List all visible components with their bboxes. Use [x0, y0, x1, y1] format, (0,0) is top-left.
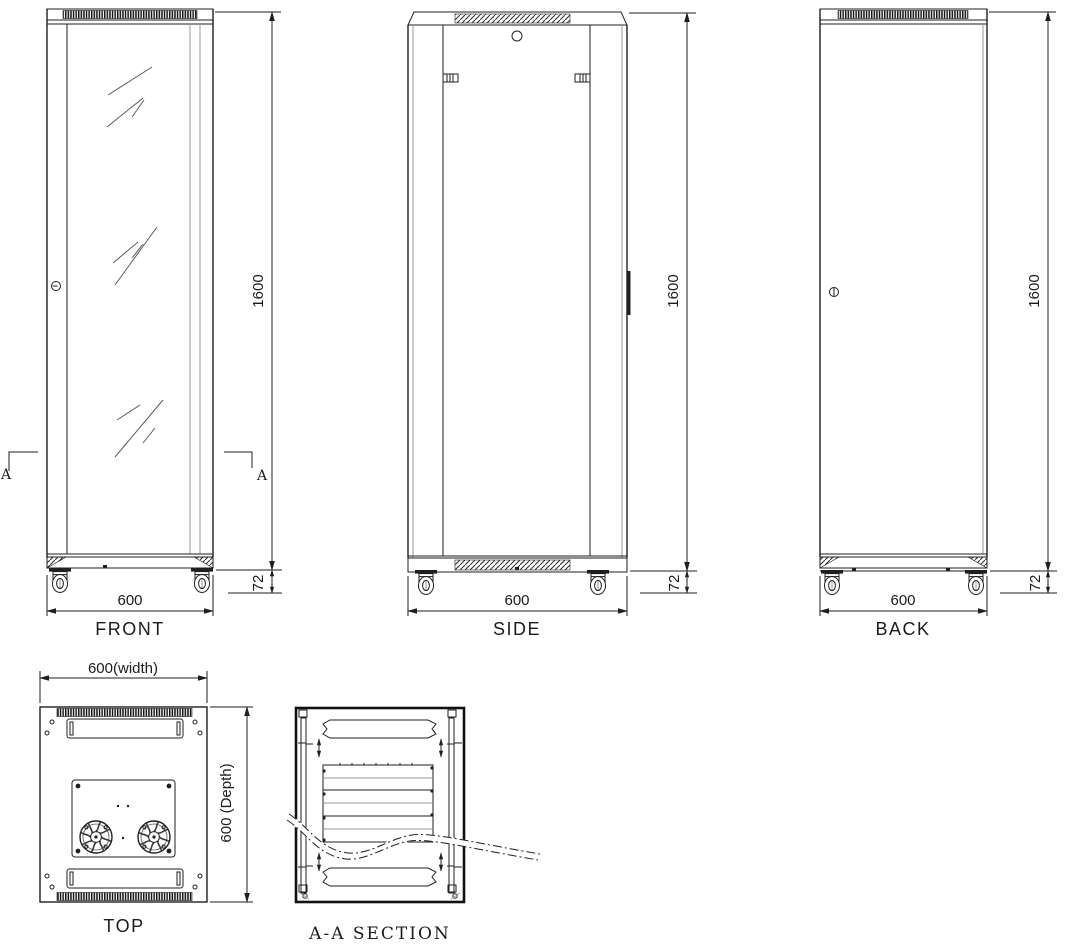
side-height-value: 1600 — [665, 274, 682, 307]
front-width-value: 600 — [117, 592, 142, 609]
side-door-handle — [627, 271, 631, 315]
side-width-value: 600 — [504, 592, 529, 609]
drawing-sheet: A A 1600 72 600 FRONT — [0, 0, 1085, 950]
section-view-label: A-A SECTION — [308, 924, 451, 944]
side-base-value: 72 — [666, 575, 683, 592]
back-base-value: 72 — [1027, 575, 1044, 592]
sheet-background — [0, 0, 1085, 950]
back-width-value: 600 — [890, 592, 915, 609]
front-view-label: FRONT — [95, 619, 165, 639]
front-height-value: 1600 — [250, 274, 267, 307]
section-mark-right: A — [256, 468, 268, 484]
technical-drawing-cabinet: A A 1600 72 600 FRONT — [0, 0, 1085, 950]
front-base-value: 72 — [250, 575, 267, 592]
section-mark-left: A — [0, 467, 12, 483]
top-width-value: 600(width) — [88, 660, 158, 677]
back-height-value: 1600 — [1026, 274, 1043, 307]
back-view-label: BACK — [875, 619, 930, 639]
side-view-label: SIDE — [493, 619, 541, 639]
top-depth-value: 600 (Depth) — [218, 763, 235, 842]
top-view-label: TOP — [103, 916, 144, 936]
